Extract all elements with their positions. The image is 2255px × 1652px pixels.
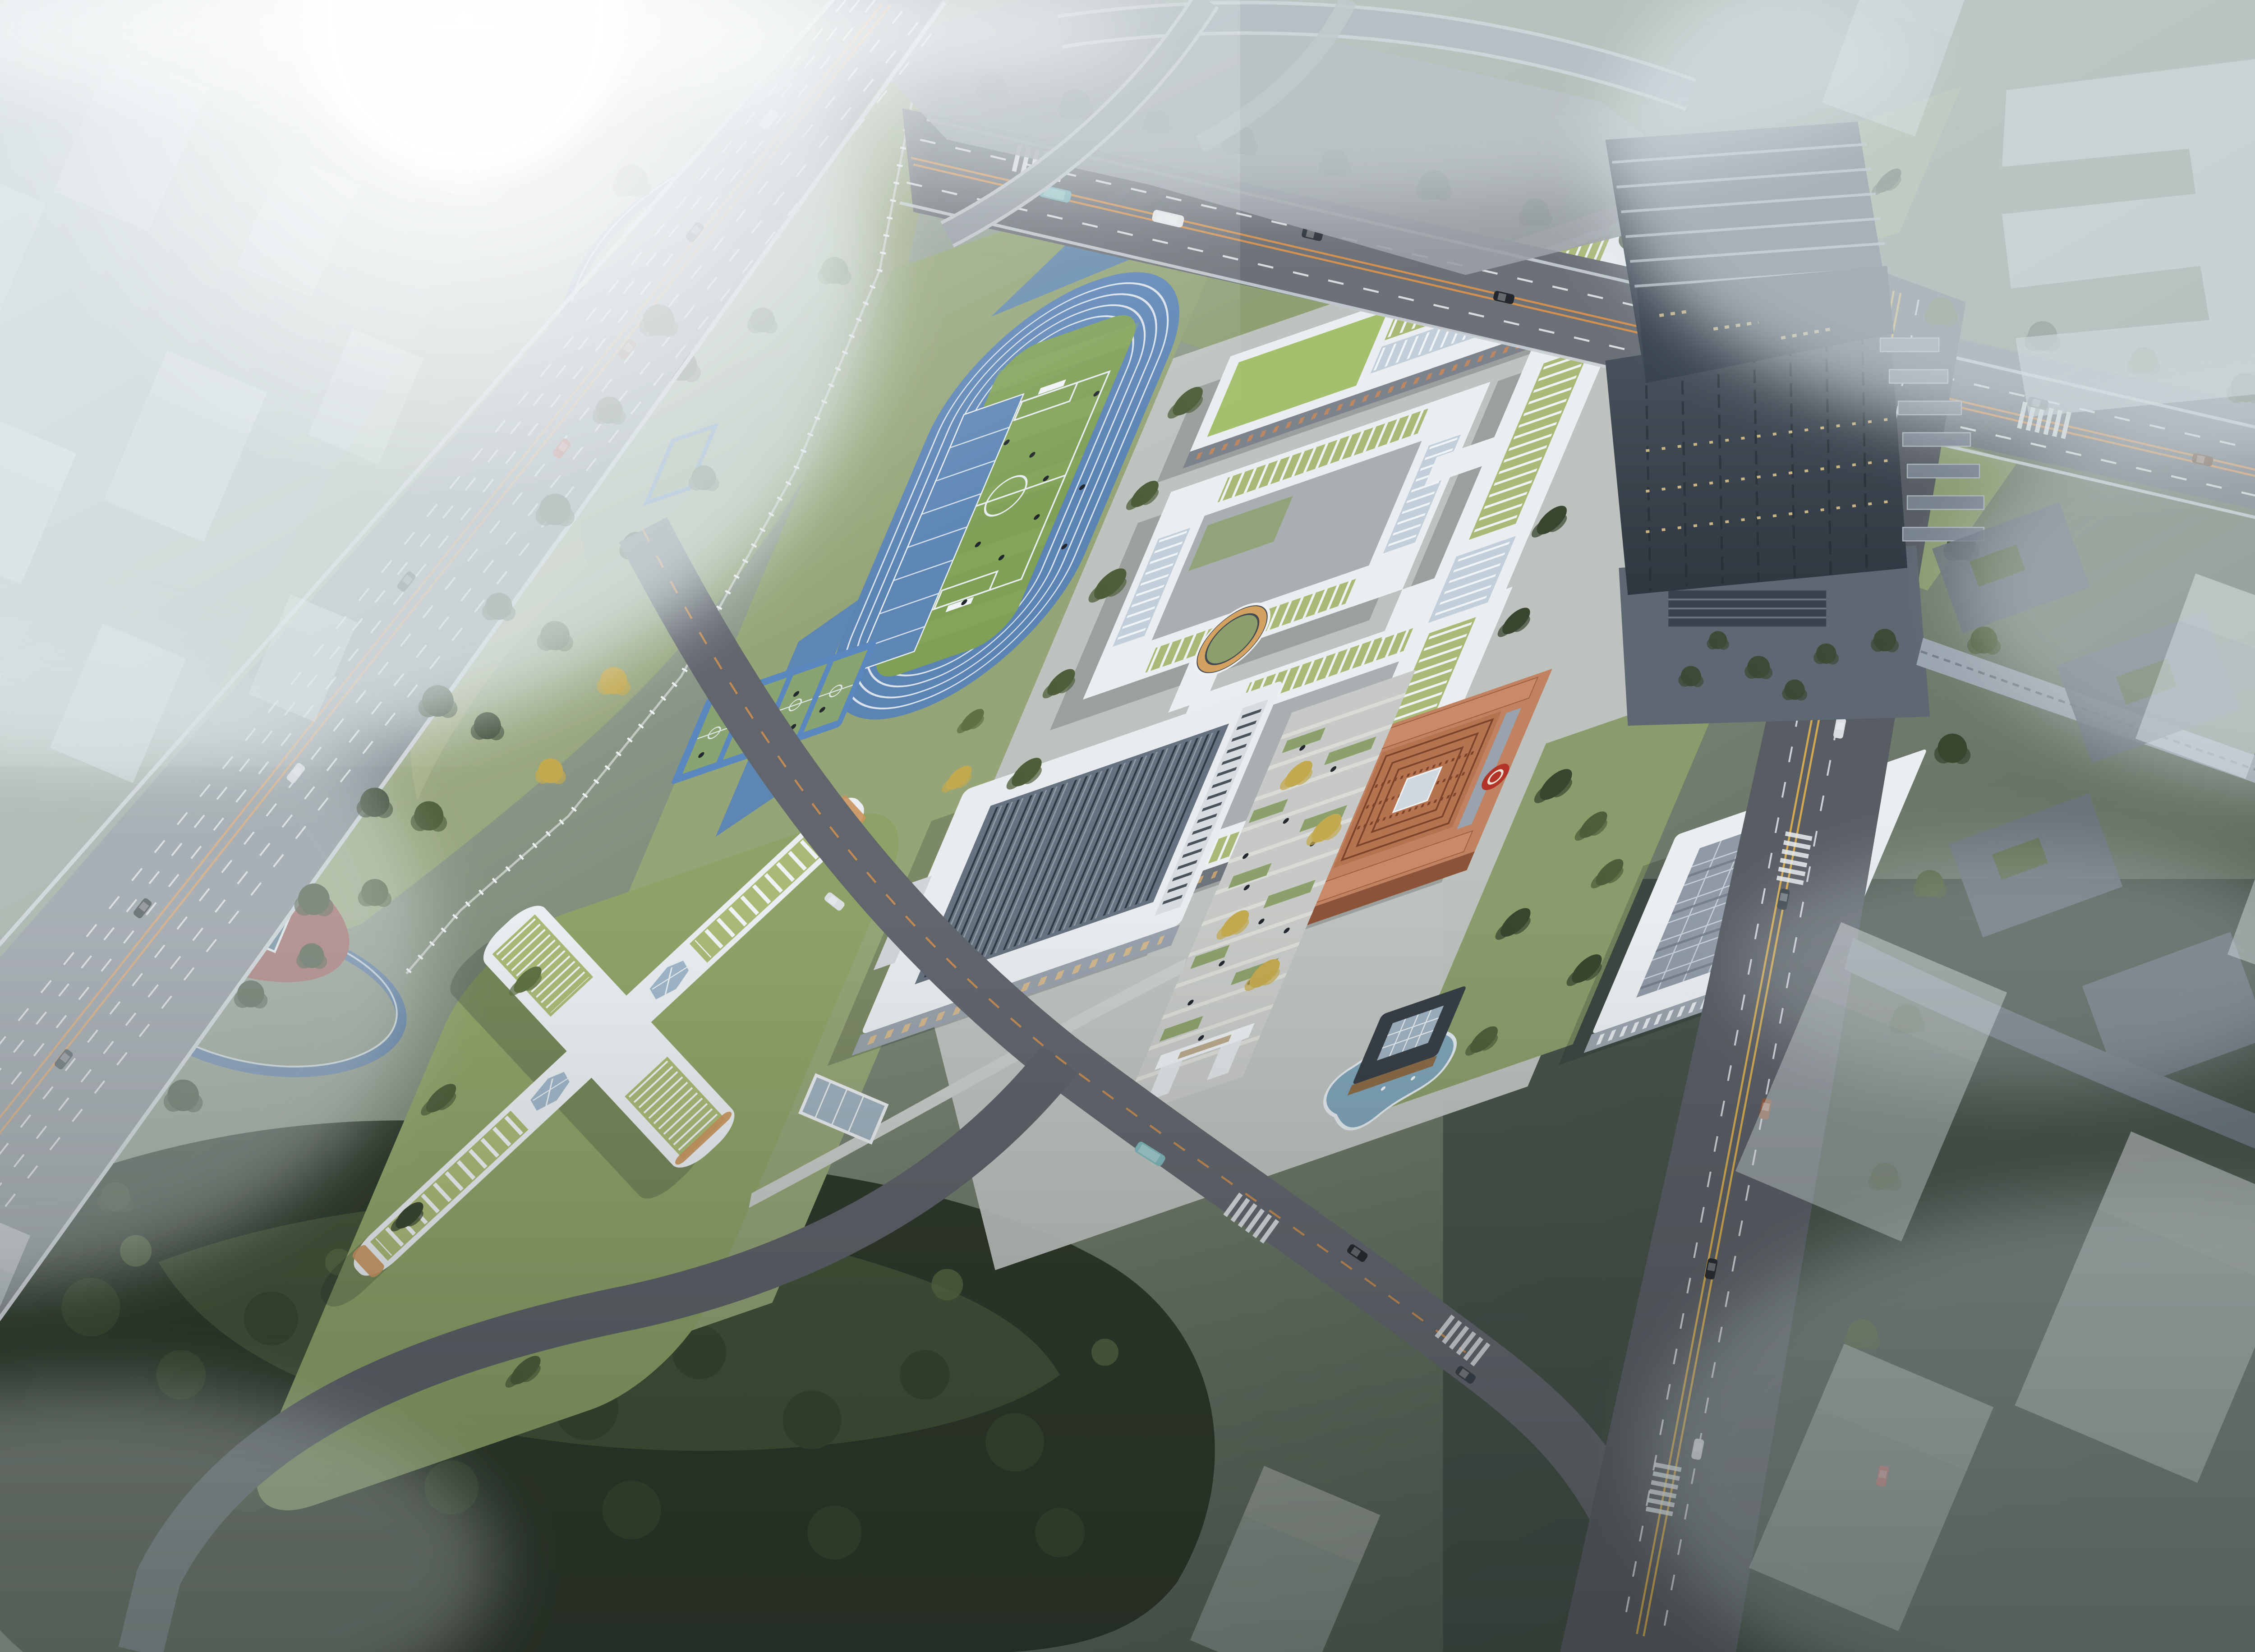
vignette xyxy=(0,0,2255,1652)
aerial-rendering-canvas xyxy=(0,0,2255,1652)
